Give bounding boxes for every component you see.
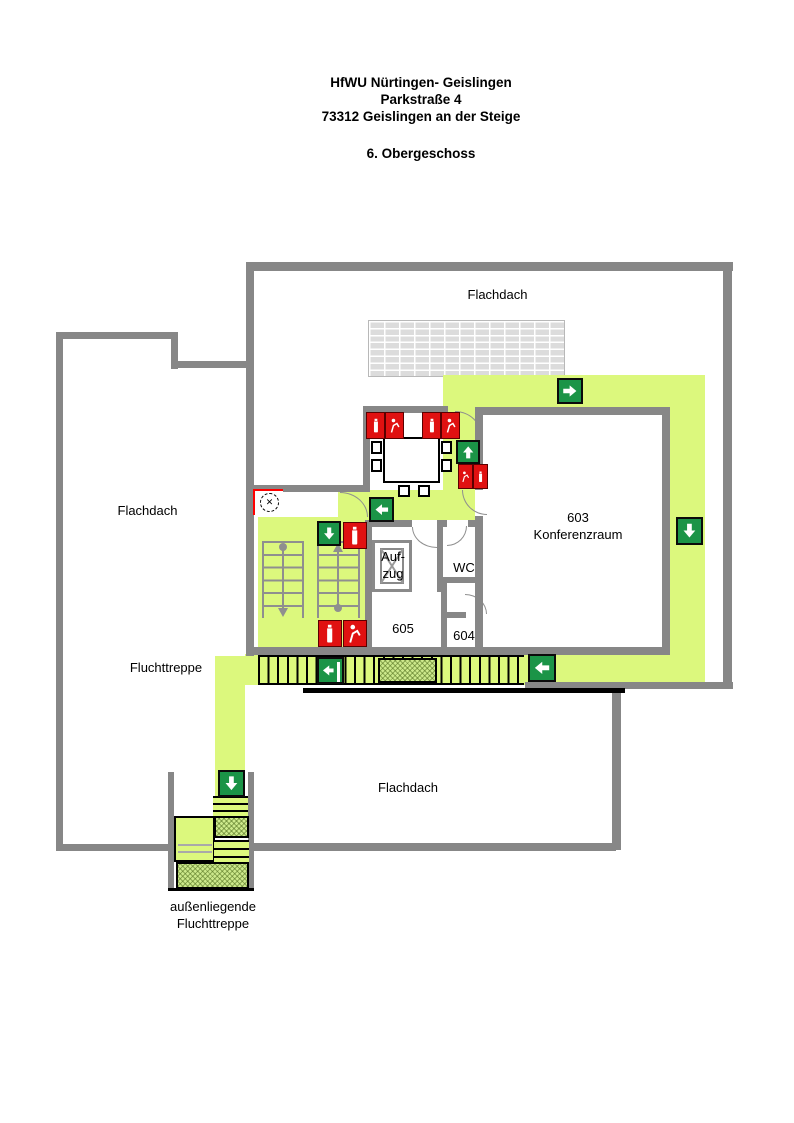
- exit-sign-left-arrow-bottom-band: [528, 654, 556, 682]
- stair-end-dot: [334, 604, 342, 612]
- label-flachdach-top: Flachdach: [440, 286, 555, 303]
- exit-sign-down-arrow-stairs: [317, 521, 341, 546]
- fire-extinguisher-sign: [366, 412, 385, 439]
- label-room-604: 604: [447, 627, 481, 644]
- fire-extinguisher-sign: [318, 620, 342, 647]
- wall-lower-roof-bottom: [248, 843, 616, 851]
- label-room-603: 603 Konferenzraum: [510, 509, 646, 543]
- wall-building-bottom: [246, 647, 670, 655]
- fire-hose-sign: [343, 620, 367, 647]
- exit-sign-left-arrow-corridor: [369, 497, 394, 522]
- wall-connector: [171, 361, 250, 368]
- street: Parkstraße 4: [48, 91, 794, 108]
- chair: [418, 485, 430, 497]
- wall-building-right: [723, 262, 732, 689]
- chair: [398, 485, 410, 497]
- site-name: HfWU Nürtingen- Geislingen: [48, 74, 794, 91]
- conference-table: [383, 437, 440, 483]
- stair-start-dot: [279, 543, 287, 551]
- roof-edge-line: [303, 688, 625, 693]
- fire-hose-icon: [389, 415, 401, 436]
- exit-sign-up-arrow: [456, 440, 480, 464]
- fire-hose-sign: [458, 464, 473, 489]
- ext-stairs-landing-line: [178, 851, 212, 853]
- chair: [371, 441, 382, 454]
- exit-sign-right-arrow: [557, 378, 583, 404]
- floor-title: 6. Obergeschoss: [48, 145, 794, 162]
- wall-conference-right: [662, 407, 670, 655]
- roof-skylight-grid: [368, 320, 565, 377]
- fire-extinguisher-icon: [426, 415, 438, 436]
- door-bar-icon: [337, 662, 340, 682]
- arrow-icon: [532, 658, 552, 678]
- exit-sign-down-arrow-external: [218, 770, 245, 797]
- stair-guide-line: [337, 548, 339, 610]
- ext-stairs-landing-line: [178, 844, 212, 846]
- label-fluchttreppe: Fluchttreppe: [116, 659, 216, 676]
- location-marker-icon: ✕: [260, 493, 279, 512]
- wall-lobby-top-c: [468, 520, 483, 527]
- door-arc: [447, 526, 467, 546]
- chair: [441, 441, 452, 454]
- fire-extinguisher-icon: [476, 467, 485, 486]
- label-flachdach-left: Flachdach: [95, 502, 200, 519]
- arrow-icon: [460, 444, 476, 460]
- city: 73312 Geislingen an der Steige: [48, 108, 794, 125]
- door-arc: [412, 527, 437, 548]
- arrow-icon: [222, 774, 241, 793]
- label-room-605: 605: [385, 620, 421, 637]
- exit-sign-down-arrow-right-band: [676, 517, 703, 545]
- plan-header: HfWU Nürtingen- Geislingen Parkstraße 4 …: [0, 74, 794, 162]
- ext-stairs-treads-upper: [213, 796, 248, 818]
- fire-extinguisher-sign: [343, 522, 367, 549]
- escape-route-right-band: [670, 408, 705, 682]
- arrow-icon: [561, 382, 579, 400]
- arrow-icon: [320, 525, 337, 541]
- fire-extinguisher-icon: [370, 415, 382, 436]
- wall-building-left: [246, 262, 254, 656]
- stair-guide-line: [282, 545, 284, 611]
- ext-stairs-hatch-bottom: [176, 862, 249, 889]
- label-line: Auf-: [374, 548, 412, 565]
- ext-stairs-treads-lower: [214, 840, 249, 862]
- location-marker-box: ✕: [253, 489, 283, 515]
- fire-extinguisher-sign: [473, 464, 488, 489]
- fire-hose-sign: [441, 412, 460, 439]
- label-line: außenliegende: [140, 898, 286, 915]
- fire-hose-icon: [445, 415, 457, 436]
- label-flachdach-bottom: Flachdach: [352, 779, 464, 796]
- wall-left-roof-bottom: [56, 844, 175, 851]
- ext-stairs-landing: [174, 816, 215, 862]
- ext-stairs-baseline: [168, 888, 254, 891]
- fire-hose-icon: [347, 623, 362, 644]
- fire-hose-sign: [385, 412, 404, 439]
- fire-extinguisher-sign: [422, 412, 441, 439]
- exit-sign-emergency-door: [317, 657, 344, 684]
- wall-left-roof-left: [56, 332, 63, 851]
- label-wc: WC: [447, 559, 481, 576]
- arrow-icon: [373, 501, 390, 518]
- room-number: 603: [510, 509, 646, 526]
- chair: [371, 459, 382, 472]
- wall-left-roof-top: [56, 332, 178, 339]
- wall-building-top: [246, 262, 733, 271]
- arrow-icon: [680, 522, 700, 541]
- ext-stairs-hatch-mid: [214, 816, 249, 838]
- wall-lower-roof-right: [612, 692, 621, 850]
- fire-extinguisher-icon: [347, 525, 362, 546]
- label-line: Fluchttreppe: [140, 915, 286, 932]
- label-aussenliegende-fluchttreppe: außenliegende Fluchttreppe: [140, 898, 286, 932]
- label-line: zug: [374, 565, 412, 582]
- stair-arrow-down: [278, 608, 288, 617]
- wall-conference-top: [475, 407, 670, 415]
- room-name: Konferenzraum: [510, 526, 646, 543]
- fire-hose-icon: [461, 467, 470, 486]
- escape-route-path-down: [215, 656, 245, 772]
- fire-extinguisher-icon: [322, 623, 337, 644]
- chair: [441, 459, 452, 472]
- evacuation-plan-page: HfWU Nürtingen- Geislingen Parkstraße 4 …: [0, 0, 794, 1123]
- stair-landing-hatch: [378, 658, 437, 683]
- label-aufzug: Auf- zug: [374, 548, 412, 582]
- wall-wc-bottom: [443, 577, 483, 583]
